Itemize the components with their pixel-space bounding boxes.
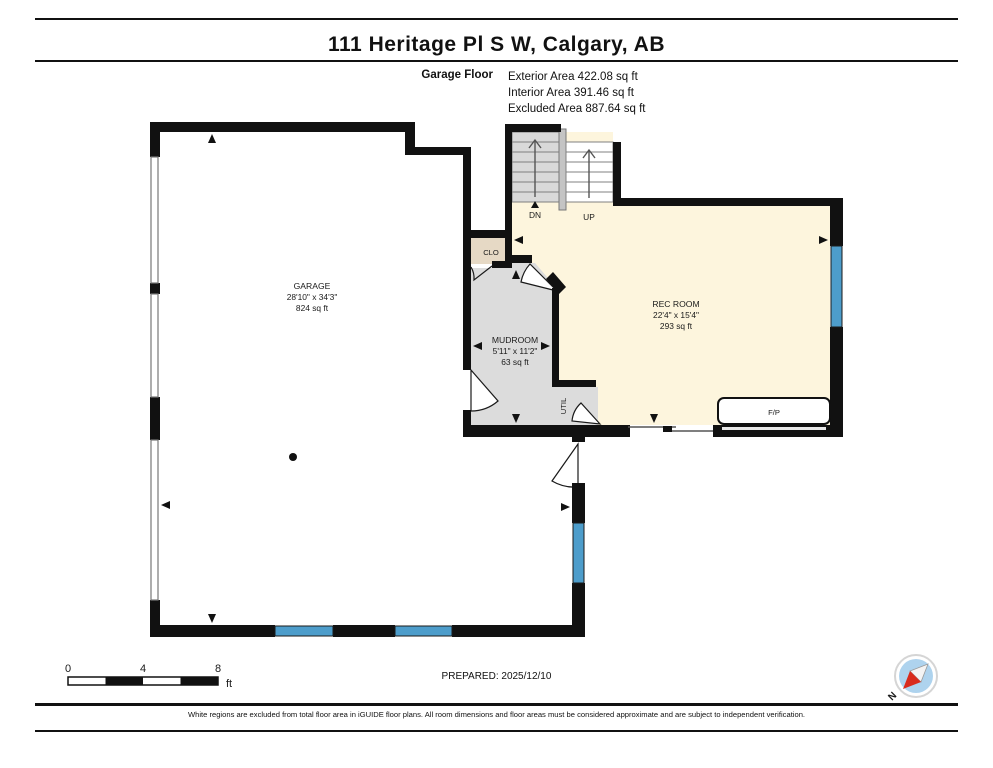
garage-door-openings <box>151 157 158 600</box>
sliding-door <box>628 426 713 432</box>
utility-label: UTIL <box>559 398 568 414</box>
recroom-area: 293 sq ft <box>660 321 693 331</box>
window-bottom-2 <box>395 626 452 636</box>
column-dot <box>289 453 297 461</box>
footer-bottom-rule <box>35 730 958 732</box>
recroom-name: REC ROOM <box>652 299 699 309</box>
staircase-up <box>566 142 613 202</box>
compass-north-label: N <box>886 690 899 703</box>
window-bottom-1 <box>275 626 333 636</box>
footer-top-rule <box>35 703 958 706</box>
stairs-up-label: UP <box>583 212 595 222</box>
floorplan-page: 111 Heritage Pl S W, Calgary, AB Garage … <box>0 0 993 768</box>
mudroom-name: MUDROOM <box>492 335 538 345</box>
garage-area: 824 sq ft <box>296 303 329 313</box>
stairs-down-label: DN <box>529 210 541 220</box>
window-recroom-right <box>831 246 842 327</box>
prepared-date: PREPARED: 2025/12/10 <box>0 671 993 682</box>
garage-name: GARAGE <box>294 281 331 291</box>
staircase-down <box>512 132 559 202</box>
stair-divider-wall <box>559 129 566 210</box>
mudroom-area: 63 sq ft <box>501 357 529 367</box>
floorplan-drawing: F/P GARAGE 28'10" x 34'3 <box>0 0 993 768</box>
recroom-dims: 22'4" x 15'4" <box>653 310 699 320</box>
door-garage-exterior <box>552 444 578 487</box>
window-garage-right <box>573 523 584 583</box>
fireplace-label: F/P <box>768 408 780 417</box>
disclaimer-text: White regions are excluded from total fl… <box>0 710 993 719</box>
garage-dims: 28'10" x 34'3" <box>287 292 338 302</box>
mudroom-dims: 5'11" x 11'2" <box>493 346 538 356</box>
closet-label: CLO <box>483 248 499 257</box>
